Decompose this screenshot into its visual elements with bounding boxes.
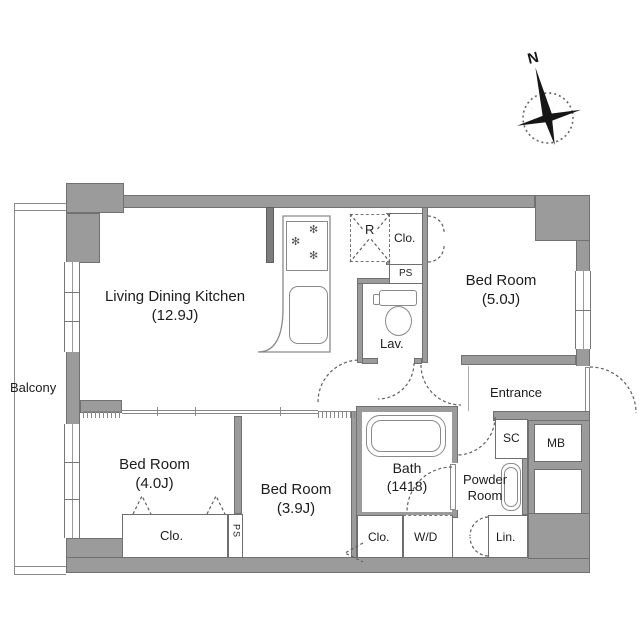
partition-tick: [280, 407, 281, 416]
entrance-step-line: [468, 366, 469, 411]
lav-label: Lav.: [380, 336, 404, 352]
pipe-space-north-label: PS: [399, 268, 412, 281]
closet-north-bifold-arc: [428, 246, 444, 262]
entrance-label: Entrance: [490, 385, 542, 401]
powder-room-label: Powder Room: [452, 472, 518, 505]
pipe-space-west-label: PS: [230, 524, 241, 538]
partition-comb-west: [83, 411, 122, 418]
window-balcony-lower: [64, 424, 80, 538]
bedroom-east-label: Bed Room (5.0J): [430, 272, 572, 310]
partition-sliding-line: [122, 410, 318, 414]
wall-kitchen-stub: [266, 207, 274, 263]
balcony-rail-top-inner: [14, 210, 66, 211]
window-bedroom-east: [575, 271, 591, 349]
partition-comb-east: [318, 411, 356, 418]
closet-north-bifold-arc: [428, 216, 444, 232]
bedroom-west-name: Bed Room: [92, 456, 217, 475]
compass-north-label: N: [526, 49, 541, 68]
bedroom-south-size: (3.9J): [236, 500, 356, 519]
wall-bottom: [66, 557, 590, 573]
wall-left-upper-block: [66, 213, 100, 263]
burner-icon: ✻: [309, 223, 318, 236]
wall-hall-top-b: [414, 358, 422, 364]
stove-icon: ✻ ✻ ✻: [286, 221, 328, 271]
powder-line2: Room: [452, 488, 518, 504]
bedroom-east-door-arc: [421, 365, 461, 405]
wall-bedroom-east-bottom: [461, 355, 576, 365]
linen-label: Lin.: [496, 530, 515, 545]
bathtub-inner-icon: [371, 420, 441, 452]
wall-lav-left: [357, 283, 363, 363]
powder-line1: Powder: [452, 472, 518, 488]
toilet-tank-icon: [379, 290, 417, 306]
burner-icon: ✻: [291, 235, 300, 248]
toilet-handle-icon: [373, 294, 380, 305]
ldk-name: Living Dining Kitchen: [95, 288, 255, 307]
partition-tick: [157, 407, 158, 416]
linen-bifold-arc: [470, 517, 488, 536]
entrance-door-leaf: [585, 367, 590, 413]
wall-top: [123, 195, 535, 208]
bedroom-east-size: (5.0J): [430, 291, 572, 310]
balcony-label: Balcony: [10, 380, 56, 396]
shoe-closet-label: SC: [503, 431, 520, 446]
bedroom-south-label: Bed Room (3.9J): [236, 481, 356, 519]
balcony-rail-top-outer: [14, 203, 66, 204]
compass-icon: N: [500, 42, 588, 153]
balcony-rail-bottom-outer: [14, 574, 66, 575]
closet-west-label: Clo.: [160, 528, 183, 544]
burner-icon: ✻: [309, 249, 318, 262]
toilet-bowl-icon: [385, 306, 412, 336]
linen-bifold-arc: [470, 537, 488, 556]
window-tick: [65, 292, 79, 293]
window-balcony-upper: [64, 262, 80, 352]
window-tick: [576, 310, 590, 311]
ldk-size: (12.9J): [95, 307, 255, 326]
closet-north-label: Clo.: [394, 231, 415, 246]
refrigerator-label: R: [363, 222, 376, 238]
window-pane-line: [72, 262, 73, 352]
bedroom-south-name: Bed Room: [236, 481, 356, 500]
wall-bottom-right-mass: [528, 513, 590, 559]
utility-box: [534, 469, 582, 514]
window-tick: [65, 499, 79, 500]
bedroom-west-size: (4.0J): [92, 475, 217, 494]
wall-hall-top-a: [362, 358, 378, 364]
bath-name: Bath: [366, 460, 448, 478]
balcony-rail-bottom-inner: [14, 566, 66, 567]
wall-top-left-block: [66, 183, 124, 213]
closet-west-bifold-mark: [207, 496, 225, 514]
bath-label: Bath (1418): [366, 460, 448, 495]
floor-plan: Balcony: [0, 0, 639, 640]
wall-top-right-block: [535, 195, 590, 241]
window-pane-line: [72, 424, 73, 538]
window-tick: [65, 321, 79, 322]
bedroom-west-label: Bed Room (4.0J): [92, 456, 217, 494]
meter-box-label: MB: [547, 436, 565, 451]
lav-door-arc: [378, 363, 414, 399]
bath-size: (1418): [366, 478, 448, 496]
closet-west-bifold-mark: [133, 496, 151, 514]
partition-tick: [195, 407, 196, 416]
closet-south-label: Clo.: [368, 530, 389, 545]
powder-door-arc: [457, 417, 495, 455]
kitchen-sink-icon: [289, 286, 328, 344]
window-tick: [65, 462, 79, 463]
ldk-label: Living Dining Kitchen (12.9J): [95, 288, 255, 326]
bedroom-east-name: Bed Room: [430, 272, 572, 291]
ldk-hall-door-arc: [318, 360, 360, 402]
washer-dryer-label: W/D: [414, 530, 437, 545]
entrance-door-arc: [590, 367, 636, 413]
